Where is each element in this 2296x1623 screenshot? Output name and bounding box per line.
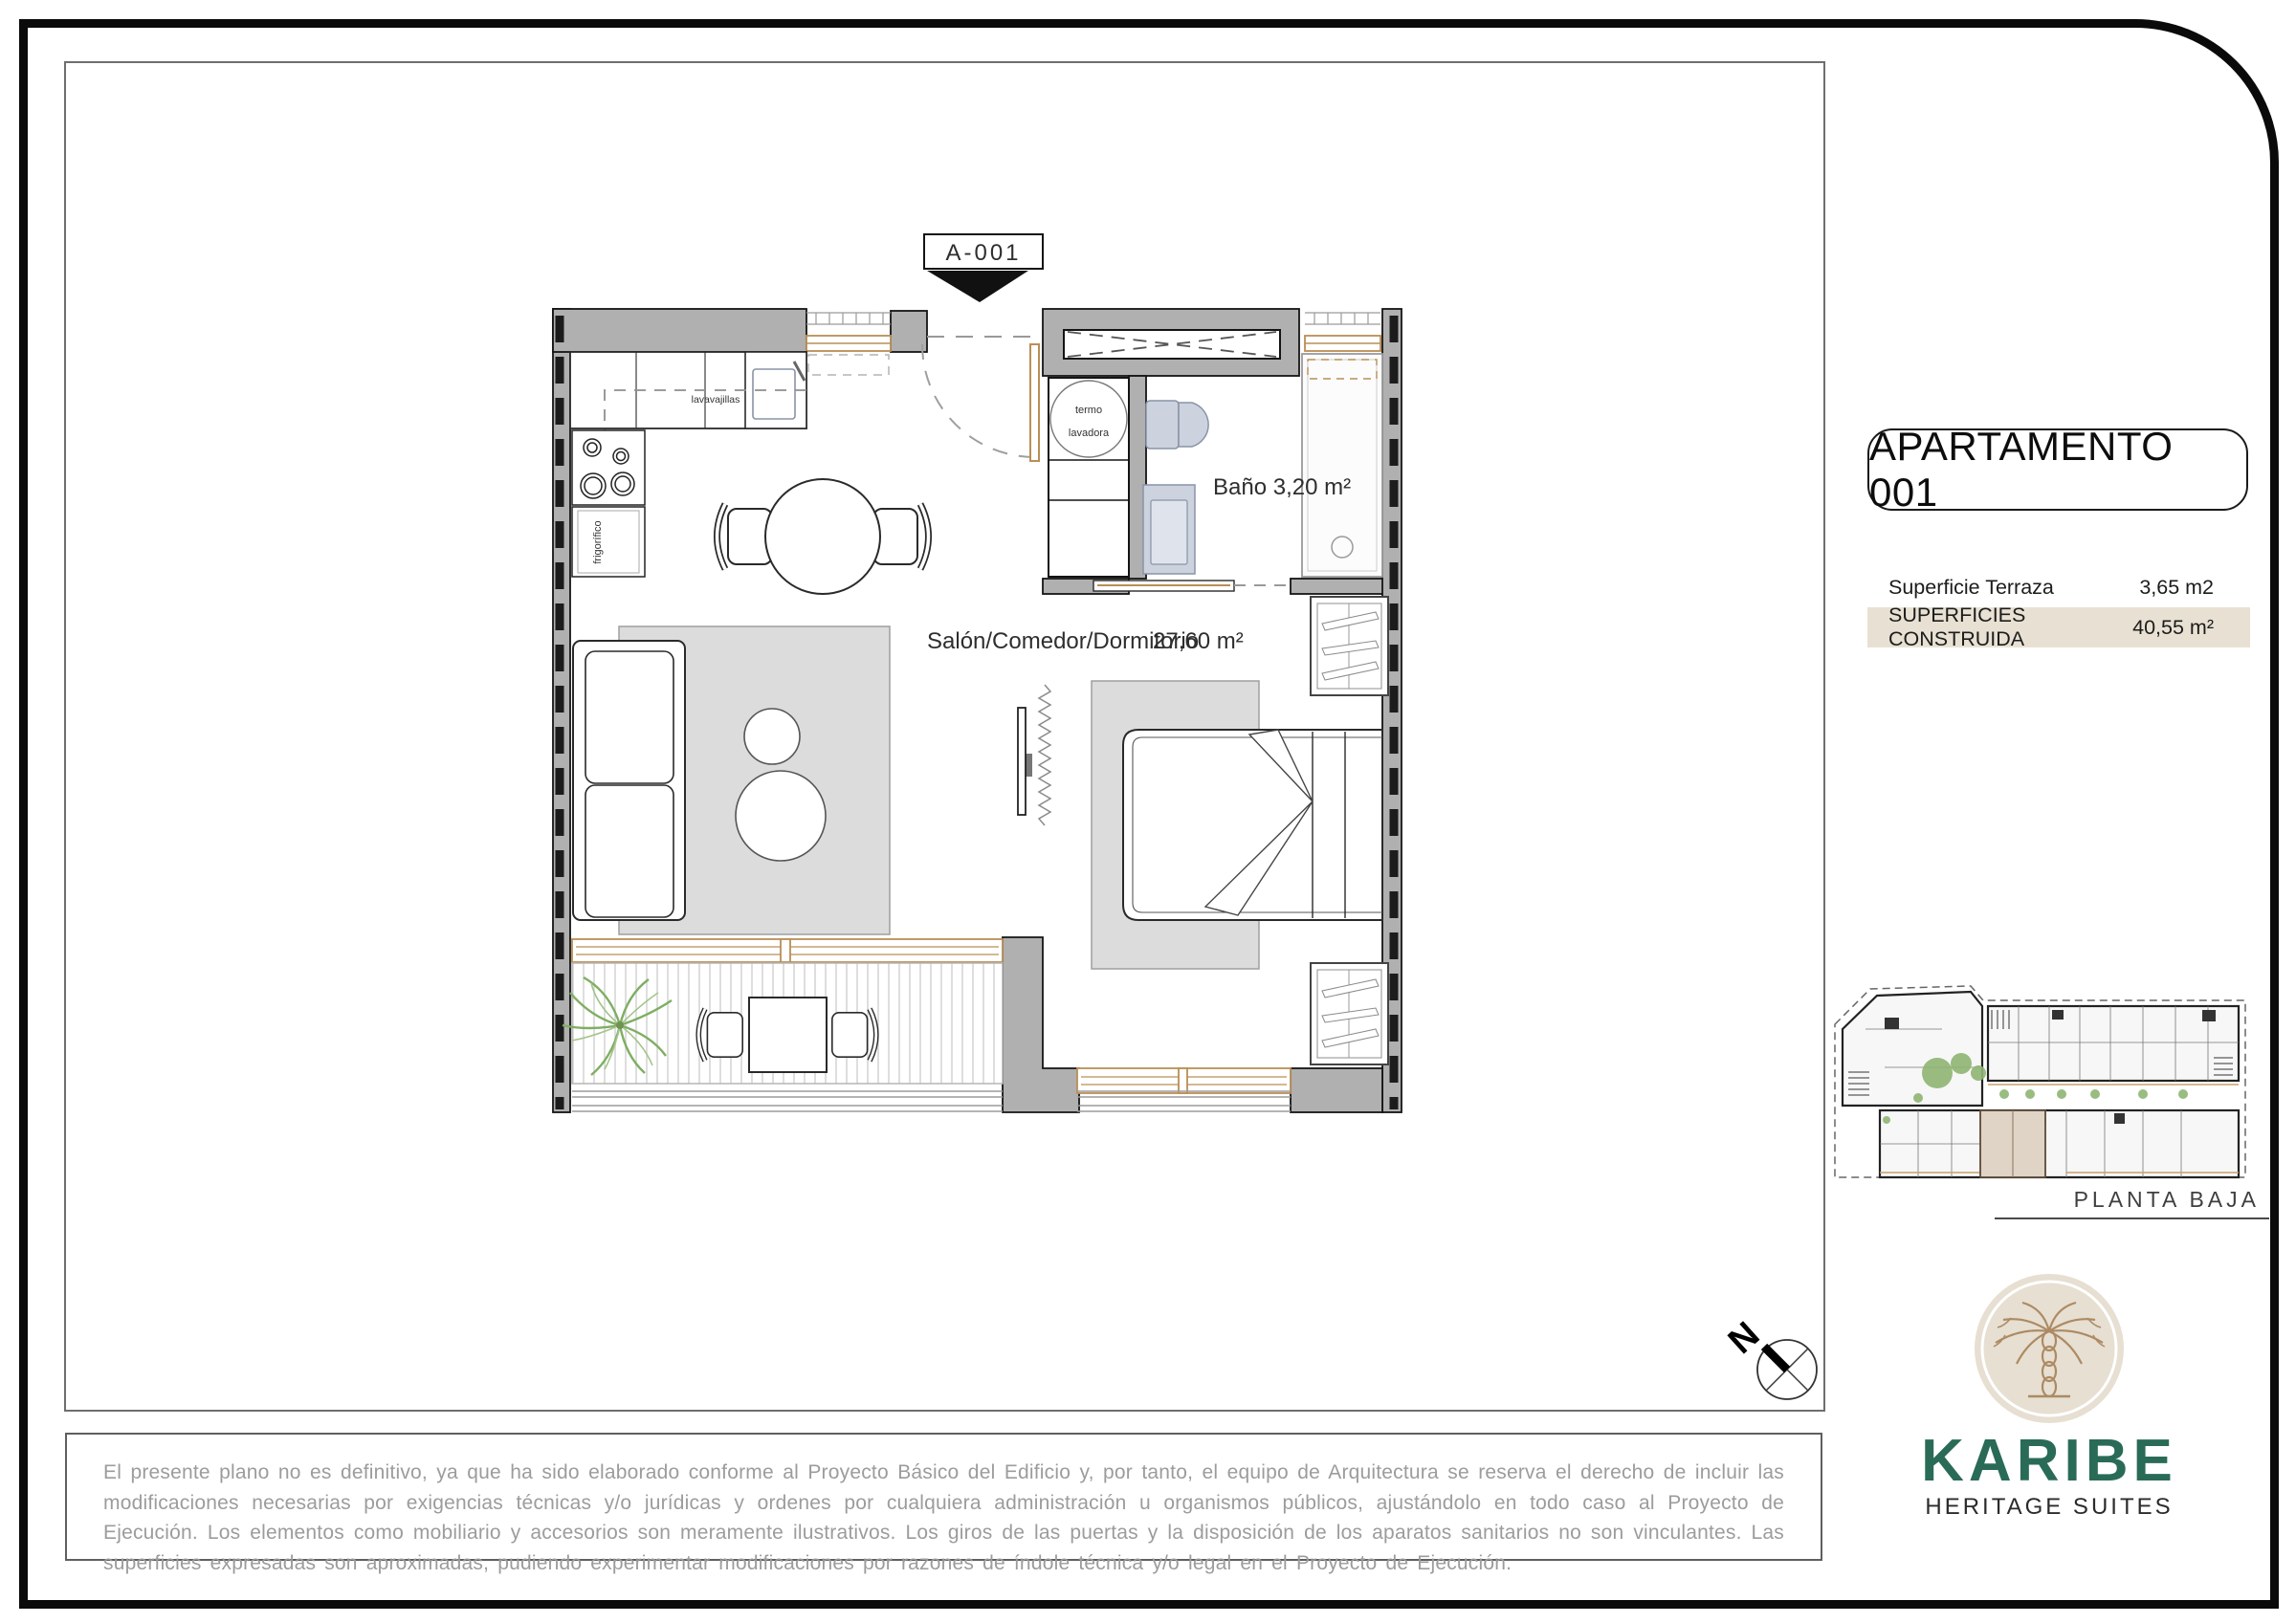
section-marker: A-001 xyxy=(924,234,1043,302)
fridge: frigorífico xyxy=(572,507,645,577)
coffee-table-large xyxy=(736,771,826,861)
bathroom: termo lavadora Baño 3,20 m² xyxy=(1049,354,1382,591)
terrace-table xyxy=(749,998,827,1072)
coffee-table-small xyxy=(744,709,800,764)
row-label: Superficie Terraza xyxy=(1867,576,2139,600)
curtain xyxy=(1039,685,1050,825)
table-row: Superficie Terraza 3,65 m2 xyxy=(1867,570,2250,604)
entrance-door xyxy=(922,337,1039,461)
dining-set xyxy=(717,479,929,594)
sliding-door xyxy=(1093,581,1291,591)
floor-plan: A-001 xyxy=(536,220,1425,1129)
bathroom-label: Baño 3,20 m² xyxy=(1213,474,1351,500)
tv xyxy=(1018,708,1032,815)
wardrobe-bottom xyxy=(1311,963,1388,1064)
living-area xyxy=(573,626,1050,934)
brand-name: KARIBE xyxy=(1887,1427,2212,1495)
row-value: 40,55 m² xyxy=(2132,616,2250,640)
section-marker-label: A-001 xyxy=(945,240,1021,266)
disclaimer-text: El presente plano no es definitivo, ya q… xyxy=(103,1458,1784,1578)
dishwasher-label: lavavajillas xyxy=(692,394,740,406)
bedroom-window xyxy=(1077,1068,1291,1093)
sink-vanity xyxy=(1143,485,1195,574)
living-area-value: 27,60 m² xyxy=(1153,628,1244,654)
shower xyxy=(1302,354,1382,577)
vent-shaft xyxy=(1064,330,1280,359)
wardrobe-top xyxy=(1311,597,1388,695)
row-label: SUPERFICIES CONSTRUIDA xyxy=(1867,603,2132,651)
terrace-door xyxy=(572,939,1003,962)
floor-label-text: PLANTA BAJA xyxy=(2074,1187,2260,1212)
section-arrow-icon xyxy=(927,271,1028,302)
table-row-highlighted: SUPERFICIES CONSTRUIDA 40,55 m² xyxy=(1867,607,2250,647)
north-compass-icon: N xyxy=(1724,1306,1839,1421)
living-label-group: Salón/Comedor/Dormitorio 27,60 m² xyxy=(927,628,1244,654)
boiler-label-bottom: lavadora xyxy=(1069,428,1110,439)
dining-table xyxy=(765,479,880,594)
apartment-title-box: APARTAMENTO 001 xyxy=(1867,428,2248,511)
brand-tagline: HERITAGE SUITES xyxy=(1887,1494,2212,1521)
disclaimer-box: El presente plano no es definitivo, ya q… xyxy=(65,1433,1822,1561)
stove xyxy=(572,430,645,505)
apartment-title: APARTAMENTO 001 xyxy=(1869,424,2246,515)
fridge-label: frigorífico xyxy=(592,520,604,563)
bedroom xyxy=(1092,597,1388,1064)
sofa xyxy=(573,641,685,920)
floor-label: PLANTA BAJA xyxy=(1995,1187,2269,1219)
brand-logo-icon xyxy=(1963,1264,2135,1437)
window-kitchen xyxy=(806,313,891,375)
site-plan xyxy=(1827,981,2253,1201)
window-bathroom xyxy=(1305,313,1380,351)
toilet xyxy=(1146,401,1208,449)
balcony-railing xyxy=(572,1091,1291,1111)
row-value: 3,65 m2 xyxy=(2139,576,2250,600)
area-table: Superficie Terraza 3,65 m2 SUPERFICIES C… xyxy=(1867,570,2250,647)
boiler-closet: termo lavadora xyxy=(1049,378,1129,577)
boiler-label-top: termo xyxy=(1075,405,1102,416)
